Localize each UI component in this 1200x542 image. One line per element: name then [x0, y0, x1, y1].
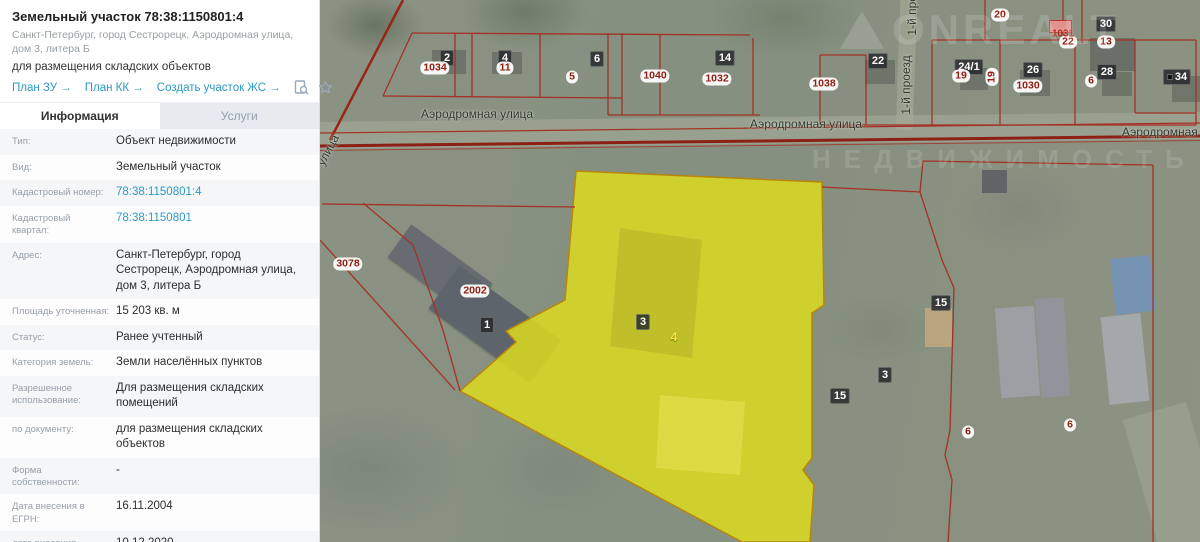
parcel-number-badge[interactable]: 1034 [420, 62, 449, 75]
info-row: Форма собственности:- [0, 458, 319, 495]
parcel-number-badge[interactable]: 1032 [702, 73, 731, 86]
info-row: дата внесения изменений:10.12.2020 [0, 531, 319, 542]
info-row: Адрес:Санкт-Петербург, город Сестрорецк,… [0, 243, 319, 300]
tab-services[interactable]: Услуги [160, 103, 320, 129]
map-canvas[interactable]: ONREALT НЕДВИЖИМОСТЬ Аэродромная улицаАэ… [320, 0, 1200, 542]
house-number-label: 28 [1097, 64, 1117, 80]
parcel-usage-text: для размещения складских объектов [12, 61, 309, 73]
action-links: План ЗУ → План КК → Создать участок ЖС → [12, 80, 309, 102]
info-row: Статус:Ранее учтенный [0, 325, 319, 351]
info-row: Кадастровый квартал:78:38:1150801 [0, 206, 319, 243]
info-row-label: Вид: [12, 160, 116, 174]
info-row: Тип:Объект недвижимости [0, 129, 319, 155]
info-row: Категория земель:Земли населённых пункто… [0, 350, 319, 376]
info-row-label: Адрес: [12, 248, 116, 262]
parcel-number-badge[interactable]: 1030 [1013, 80, 1042, 93]
parcel-number-badge[interactable]: 19 [952, 70, 970, 83]
street-name-label: 1-й проезд [899, 55, 913, 114]
cadastral-map-app: Земельный участок 78:38:1150801:4 Санкт-… [0, 0, 1200, 542]
plan-kk-link[interactable]: План КК → [85, 82, 144, 94]
info-row: Разрешенное использование:Для размещения… [0, 376, 319, 417]
building-icon [1167, 74, 1173, 80]
parcel-number-badge[interactable]: 1038 [809, 78, 838, 91]
tab-information[interactable]: Информация [0, 103, 160, 129]
parcel-address-subtitle: Санкт-Петербург, город Сестрорецк, Аэрод… [12, 29, 309, 56]
info-row: Вид:Земельный участок [0, 155, 319, 181]
info-row-value: 15 203 кв. м [116, 304, 319, 320]
street-name-label: улица [320, 132, 342, 168]
house-number-label: 26 [1023, 62, 1043, 78]
info-row-value: - [116, 463, 319, 479]
selected-parcel-number: 4 [671, 330, 678, 344]
info-row: по документу:для размещения складских об… [0, 417, 319, 458]
info-row-value-link[interactable]: 78:38:1150801:4 [116, 185, 319, 201]
info-row-label: дата внесения изменений: [12, 536, 116, 542]
house-number-label: 3 [878, 367, 892, 383]
parcel-title: Земельный участок 78:38:1150801:4 [12, 9, 309, 24]
info-row-value: для размещения складских объектов [116, 422, 319, 453]
parcel-number-badge[interactable]: 11 [496, 62, 513, 75]
parcel-number-badge[interactable]: 2002 [460, 285, 489, 298]
parcel-number-badge[interactable]: 13 [1097, 36, 1115, 49]
info-row-value: Земли населённых пунктов [116, 355, 319, 371]
info-row: Дата внесения в ЕГРН:16.11.2004 [0, 494, 319, 531]
parcel-number-badge[interactable]: 5 [566, 71, 578, 84]
house-number-label: 3 [636, 314, 650, 330]
info-row: Кадастровый номер:78:38:1150801:4 [0, 180, 319, 206]
info-rows: Тип:Объект недвижимостиВид:Земельный уча… [0, 129, 319, 542]
parcel-number-badge[interactable]: 6 [962, 426, 974, 439]
info-row-label: Форма собственности: [12, 463, 116, 490]
house-number-label: 1 [480, 317, 494, 333]
info-row: Площадь уточненная:15 203 кв. м [0, 299, 319, 325]
info-row-value: Ранее учтенный [116, 330, 319, 346]
info-row-value: Санкт-Петербург, город Сестрорецк, Аэрод… [116, 248, 319, 295]
house-number-label: 22 [868, 53, 888, 69]
house-number-label: 15 [830, 388, 850, 404]
info-row-value: Для размещения складских помещений [116, 381, 319, 412]
info-row-label: Категория земель: [12, 355, 116, 369]
plan-zu-link[interactable]: План ЗУ → [12, 82, 72, 94]
house-number-label: 14 [715, 50, 735, 66]
house-number-label: 15 [931, 295, 951, 311]
parcel-number-badge[interactable]: 20 [991, 9, 1009, 22]
info-row-label: Тип: [12, 134, 116, 148]
house-number-label: 34 [1163, 69, 1191, 85]
info-row-label: Площадь уточненная: [12, 304, 116, 318]
street-name-label: 1-й проезд [905, 0, 919, 36]
info-row-label: Кадастровый номер: [12, 185, 116, 199]
house-number-label: 30 [1096, 16, 1116, 32]
parcel-number-badge[interactable]: 1040 [640, 70, 669, 83]
parcel-number-badge[interactable]: 6 [1085, 75, 1097, 88]
panel-header: Земельный участок 78:38:1150801:4 Санкт-… [0, 0, 319, 102]
oks-number-label: 1031 [1052, 29, 1074, 40]
house-number-label: 6 [590, 51, 604, 67]
street-name-label: Аэродромная улица [750, 117, 862, 131]
info-row-value: 16.11.2004 [116, 499, 319, 515]
info-row-label: Дата внесения в ЕГРН: [12, 499, 116, 526]
parcel-number-badge[interactable]: 3078 [333, 258, 362, 271]
parcel-info-panel: Земельный участок 78:38:1150801:4 Санкт-… [0, 0, 320, 542]
panel-tabs: Информация Услуги [0, 102, 319, 129]
street-name-label: Аэродромная улица [1122, 125, 1200, 139]
info-row-value: Объект недвижимости [116, 134, 319, 150]
street-name-label: Аэродромная улица [421, 107, 533, 121]
create-zhs-link[interactable]: Создать участок ЖС → [157, 82, 281, 94]
info-row-label: Статус: [12, 330, 116, 344]
parcel-number-badge[interactable]: 19 [986, 68, 999, 86]
info-row-value-link[interactable]: 78:38:1150801 [116, 211, 319, 227]
info-row-value: 10.12.2020 [116, 536, 319, 542]
info-row-label: Кадастровый квартал: [12, 211, 116, 238]
info-row-label: Разрешенное использование: [12, 381, 116, 408]
info-row-label: по документу: [12, 422, 116, 436]
info-row-value: Земельный участок [116, 160, 319, 176]
doc-search-icon[interactable] [294, 80, 309, 95]
parcel-number-badge[interactable]: 6 [1064, 419, 1076, 432]
